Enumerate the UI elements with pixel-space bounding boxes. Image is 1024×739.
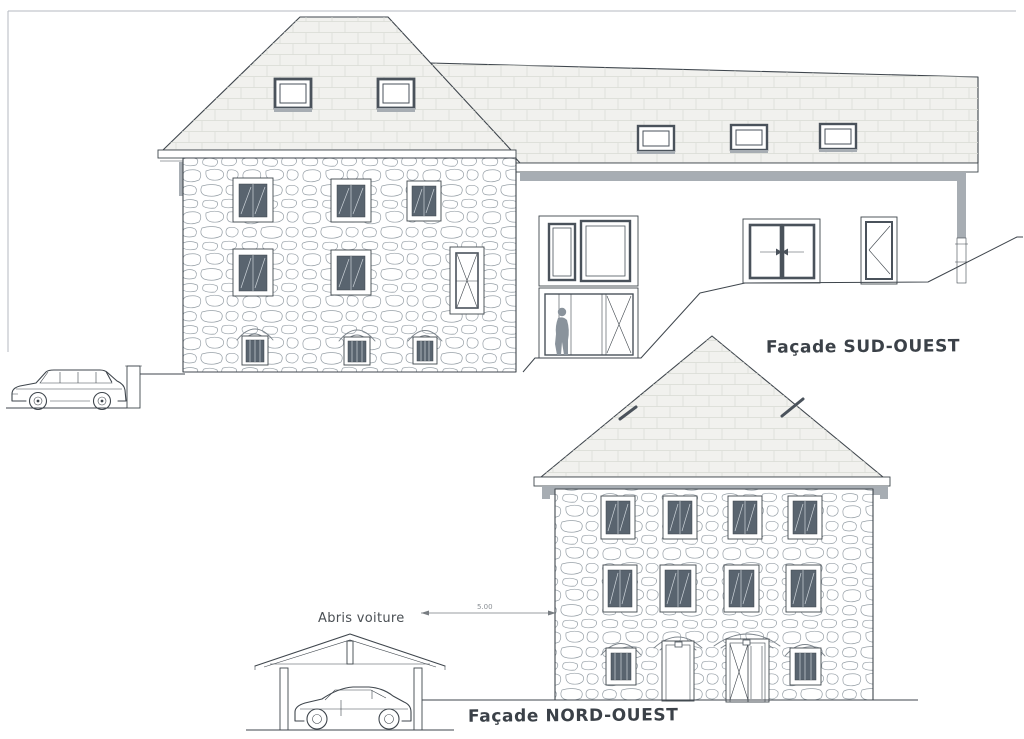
carport-post xyxy=(280,668,288,730)
window-with-shutters xyxy=(786,565,821,612)
wing-side-door xyxy=(861,217,897,284)
wing-upper-glazing xyxy=(539,216,638,286)
roof-window xyxy=(377,79,415,112)
architectural-drawing-canvas xyxy=(0,0,1024,739)
architectural-elevation-sheet: Façade SUD-OUEST Façade NORD-OUEST Abris… xyxy=(0,0,1024,739)
carport-drawing xyxy=(246,634,454,730)
roof-window xyxy=(637,126,675,154)
window-with-shutters xyxy=(601,496,635,539)
window-with-shutters xyxy=(728,496,762,539)
arched-window-with-shutters xyxy=(339,330,375,365)
carport-roof xyxy=(255,634,445,670)
arched-window-with-shutters xyxy=(601,644,641,686)
window-with-shutters xyxy=(407,181,441,221)
window-with-shutters xyxy=(788,496,822,539)
roof-window xyxy=(730,125,768,153)
window-with-shutters xyxy=(663,496,697,539)
window-with-shutters xyxy=(724,565,759,612)
window-with-shutters xyxy=(233,249,273,296)
carport-post xyxy=(414,668,422,730)
roof-window xyxy=(819,124,857,152)
facade-sud-ouest-label: Façade SUD-OUEST xyxy=(766,336,960,357)
abris-voiture-label: Abris voiture xyxy=(318,611,405,626)
arched-window-with-shutters xyxy=(785,645,825,686)
window-with-shutters xyxy=(603,565,637,612)
tall-glazed-door xyxy=(450,247,484,314)
window-with-shutters xyxy=(331,250,371,295)
arched-window-with-shutters xyxy=(237,329,273,365)
facade-nord-ouest-label: Façade NORD-OUEST xyxy=(468,705,679,726)
dimension-line xyxy=(421,611,556,616)
wing-double-door xyxy=(743,219,820,283)
window-with-shutters xyxy=(331,179,371,222)
window-with-shutters xyxy=(233,178,273,222)
roof-window xyxy=(274,79,312,112)
dimension-value: 5.00 xyxy=(477,603,493,611)
pyramid-roof xyxy=(534,336,890,499)
station-wagon-drawing xyxy=(6,366,142,410)
window-with-shutters xyxy=(660,565,696,612)
arched-window-with-shutters xyxy=(408,331,442,365)
wing-sliding-door xyxy=(539,288,638,358)
coupe-car-drawing xyxy=(295,687,411,729)
facade-nord-ouest-drawing xyxy=(422,336,918,702)
